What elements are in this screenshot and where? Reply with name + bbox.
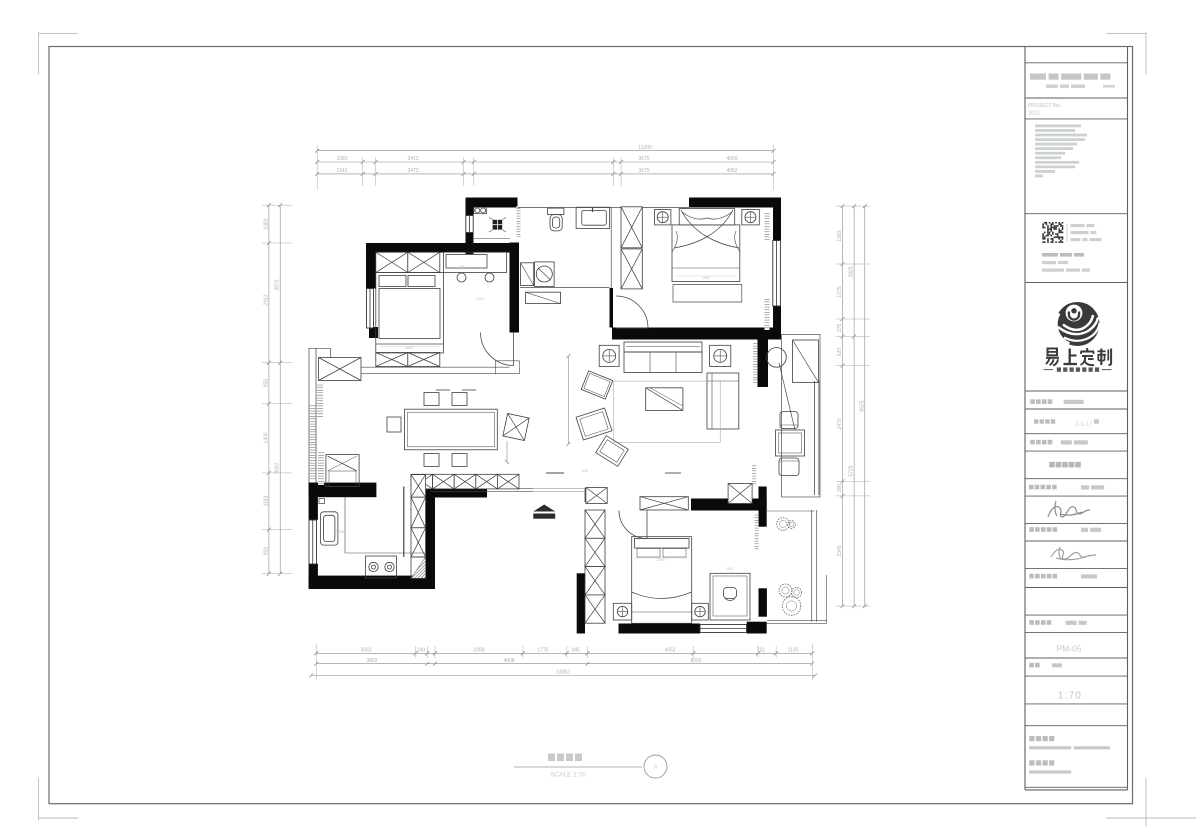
svg-text:13062: 13062 <box>556 670 570 676</box>
svg-text:8000: 8000 <box>690 658 701 664</box>
svg-text:240: 240 <box>417 648 426 654</box>
svg-text:1083: 1083 <box>263 218 269 229</box>
svg-text:1500: 1500 <box>657 558 665 562</box>
svg-text:1135: 1135 <box>788 648 799 654</box>
svg-text:2413: 2413 <box>407 156 418 162</box>
svg-text:375: 375 <box>837 324 843 333</box>
svg-text:1083: 1083 <box>336 156 347 162</box>
svg-text:3675: 3675 <box>638 156 649 162</box>
svg-text:2473: 2473 <box>407 168 418 174</box>
svg-text:1241: 1241 <box>336 168 347 174</box>
svg-text:8525: 8525 <box>859 400 865 411</box>
svg-text:903: 903 <box>263 547 269 556</box>
svg-text:5725: 5725 <box>849 465 855 476</box>
svg-text:950: 950 <box>263 379 269 388</box>
svg-text:2413: 2413 <box>263 294 269 305</box>
svg-text:1400: 1400 <box>263 432 269 443</box>
svg-text:A: A <box>653 765 657 771</box>
svg-text:4059: 4059 <box>726 156 737 162</box>
svg-text:2-1-17: 2-1-17 <box>1075 422 1093 428</box>
svg-text:2345: 2345 <box>837 545 843 556</box>
svg-text:11300: 11300 <box>638 145 652 151</box>
svg-text:1:70: 1:70 <box>1058 690 1082 702</box>
svg-text:600: 600 <box>727 567 733 571</box>
svg-text:845: 845 <box>572 648 581 654</box>
svg-text:848: 848 <box>582 469 588 473</box>
svg-text:1800: 1800 <box>702 276 710 280</box>
svg-text:1725: 1725 <box>837 286 843 297</box>
svg-text:900: 900 <box>459 265 465 269</box>
svg-text:2358: 2358 <box>336 530 344 534</box>
svg-text:1350: 1350 <box>476 297 484 301</box>
svg-text:4087: 4087 <box>275 462 281 473</box>
svg-text:1183: 1183 <box>263 495 269 506</box>
svg-text:2825: 2825 <box>849 266 855 277</box>
svg-text:PROJECT No.: PROJECT No. <box>1028 103 1062 109</box>
svg-text:4008: 4008 <box>503 658 514 664</box>
svg-text:3562: 3562 <box>360 648 371 654</box>
svg-text:PM-05: PM-05 <box>1056 644 1081 654</box>
svg-text:1775: 1775 <box>537 648 548 654</box>
svg-text:1283: 1283 <box>837 230 843 241</box>
svg-text:SCALE 1:70: SCALE 1:70 <box>550 772 586 779</box>
svg-text:3802: 3802 <box>366 658 377 664</box>
svg-text:2358: 2358 <box>473 648 484 654</box>
svg-text:300: 300 <box>837 484 843 493</box>
svg-text:3675: 3675 <box>638 168 649 174</box>
svg-text:4052: 4052 <box>664 648 675 654</box>
svg-text:4052: 4052 <box>726 168 737 174</box>
svg-text:620: 620 <box>837 348 843 357</box>
svg-text:2022: 2022 <box>1029 111 1040 117</box>
svg-text:3875: 3875 <box>275 279 281 290</box>
svg-text:2470: 2470 <box>837 418 843 429</box>
